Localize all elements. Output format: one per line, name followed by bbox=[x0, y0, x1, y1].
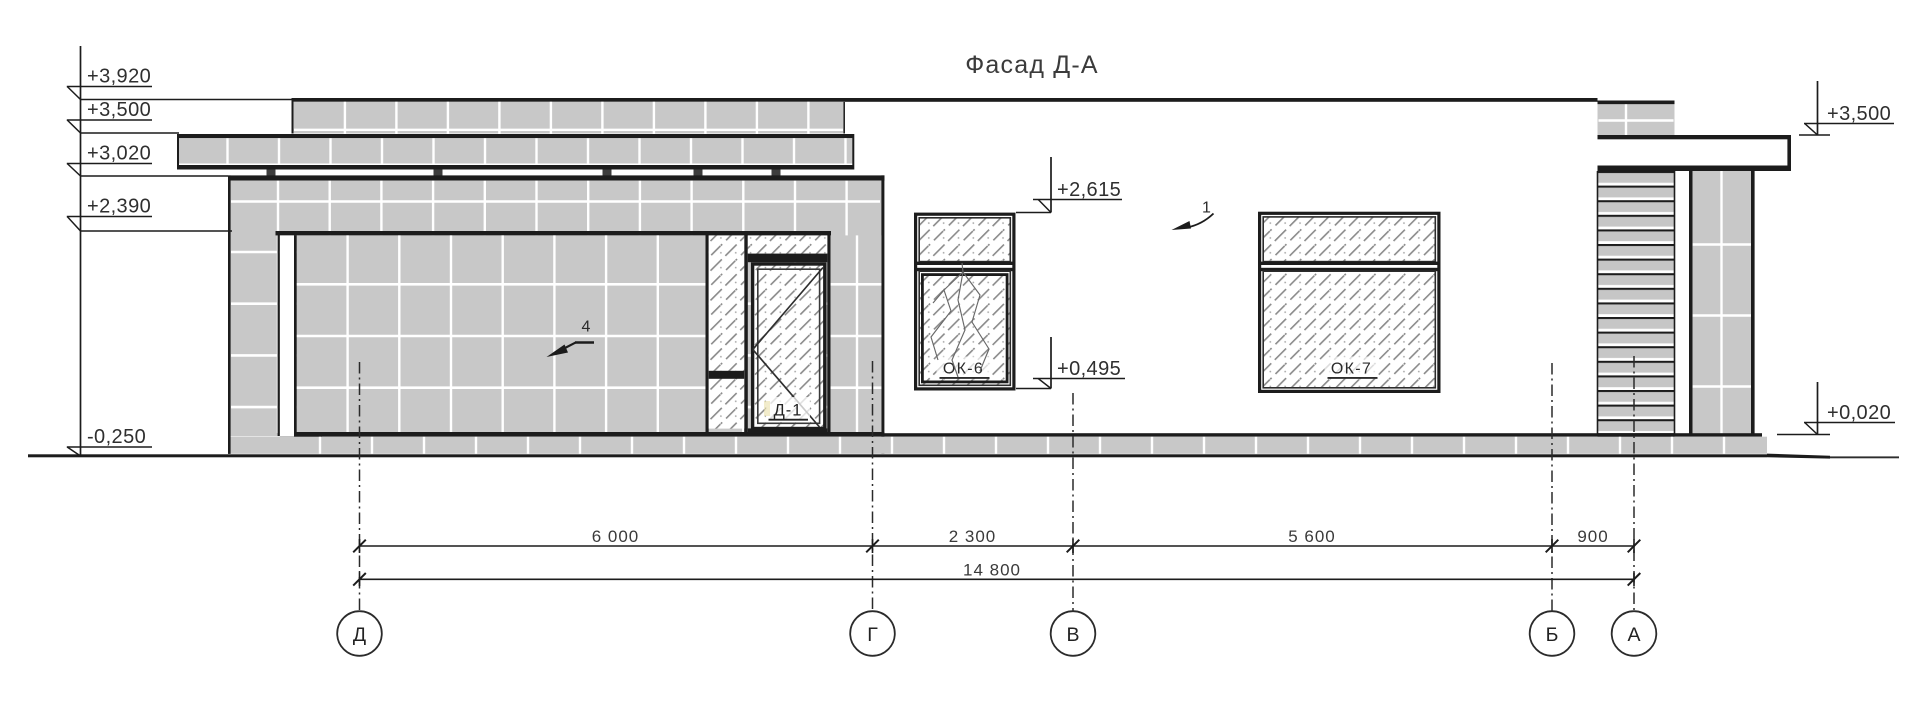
svg-text:ОК-7: ОК-7 bbox=[1331, 361, 1372, 378]
svg-text:Г: Г bbox=[867, 624, 878, 646]
svg-text:900: 900 bbox=[1577, 527, 1608, 546]
svg-text:6 000: 6 000 bbox=[592, 527, 640, 546]
svg-text:ОК-6: ОК-6 bbox=[943, 361, 984, 378]
svg-text:2 300: 2 300 bbox=[949, 527, 997, 546]
svg-text:-0,250: -0,250 bbox=[87, 426, 146, 448]
svg-text:+3,500: +3,500 bbox=[87, 99, 151, 121]
svg-text:+3,020: +3,020 bbox=[87, 143, 151, 165]
svg-text:А: А bbox=[1627, 624, 1640, 646]
svg-text:+0,495: +0,495 bbox=[1057, 358, 1121, 380]
svg-text:+2,390: +2,390 bbox=[87, 196, 151, 218]
svg-text:4: 4 bbox=[582, 319, 591, 336]
svg-text:5 600: 5 600 bbox=[1288, 527, 1336, 546]
svg-text:Д-1: Д-1 bbox=[774, 402, 803, 420]
svg-text:Д: Д bbox=[353, 624, 366, 646]
svg-text:+3,500: +3,500 bbox=[1827, 103, 1891, 125]
svg-text:+3,920: +3,920 bbox=[87, 66, 151, 88]
svg-text:+2,615: +2,615 bbox=[1057, 179, 1121, 201]
svg-text:Фасад Д-А: Фасад Д-А bbox=[965, 51, 1099, 79]
svg-text:+0,020: +0,020 bbox=[1827, 402, 1891, 424]
svg-text:В: В bbox=[1066, 624, 1079, 646]
svg-text:14 800: 14 800 bbox=[963, 560, 1021, 579]
svg-text:Б: Б bbox=[1546, 624, 1559, 646]
svg-text:1: 1 bbox=[1202, 200, 1211, 217]
